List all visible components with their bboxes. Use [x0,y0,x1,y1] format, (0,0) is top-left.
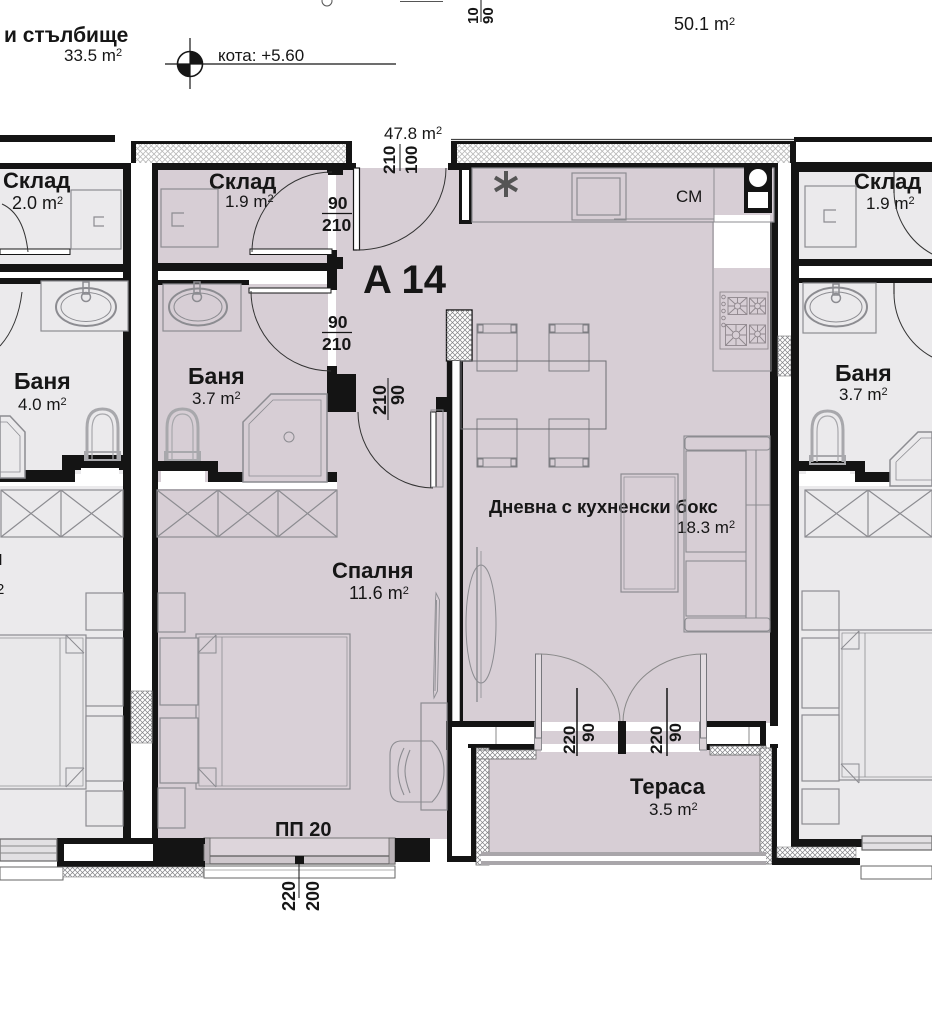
svg-text:50.1 m2: 50.1 m2 [674,14,735,34]
svg-text:СМ: СМ [676,187,702,206]
svg-text:11.6 m2: 11.6 m2 [349,583,409,603]
svg-text:90: 90 [666,723,685,742]
svg-text:210: 210 [370,385,390,415]
svg-text:2: 2 [0,581,4,598]
svg-text:я: я [0,548,3,570]
svg-text:220: 220 [560,726,579,754]
svg-text:4.0 m2: 4.0 m2 [18,395,67,414]
svg-text:Тераса: Тераса [630,774,706,799]
svg-text:210: 210 [380,146,399,174]
svg-text:220: 220 [279,881,299,911]
svg-text:47.8 m2: 47.8 m2 [384,124,442,143]
svg-text:Склад: Склад [854,169,921,194]
svg-text:1.9 m2: 1.9 m2 [225,192,274,211]
svg-text:Склад: Склад [209,169,276,194]
svg-text:Баня: Баня [188,363,245,389]
svg-text:200: 200 [303,881,323,911]
svg-text:90: 90 [328,312,348,332]
svg-text:210: 210 [322,334,351,354]
svg-text:210: 210 [322,215,351,235]
svg-text:3.7 m2: 3.7 m2 [192,389,241,408]
svg-text:и стълбище: и стълбище [4,24,128,47]
svg-text:1.9 m2: 1.9 m2 [866,194,915,213]
svg-text:33.5 m2: 33.5 m2 [64,46,122,65]
svg-text:A 14: A 14 [363,258,447,302]
svg-text:кота: +5.60: кота: +5.60 [218,46,304,65]
svg-text:90: 90 [480,7,497,24]
svg-text:2.0 m2: 2.0 m2 [12,193,63,213]
svg-text:100: 100 [402,146,421,174]
svg-text:Баня: Баня [14,368,71,394]
svg-text:Склад: Склад [3,168,70,193]
svg-text:3.5 m2: 3.5 m2 [649,800,698,819]
svg-text:90: 90 [328,193,348,213]
svg-text:3.7 m2: 3.7 m2 [839,385,888,404]
svg-text:Баня: Баня [835,360,892,386]
svg-text:90: 90 [388,385,408,405]
svg-text:220: 220 [647,726,666,754]
svg-text:Спалня: Спалня [332,558,414,583]
svg-text:90: 90 [579,723,598,742]
svg-text:ПП 20: ПП 20 [275,819,332,841]
